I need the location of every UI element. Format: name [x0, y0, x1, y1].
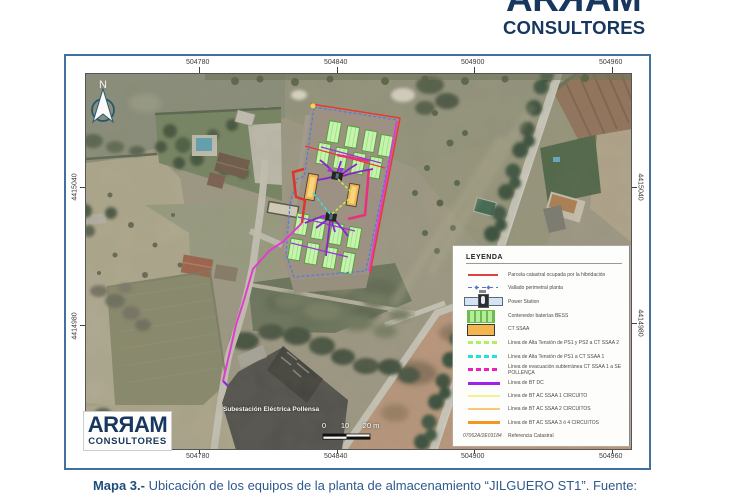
svg-text:20 m: 20 m [363, 421, 380, 430]
svg-text:Subestación Eléctrica Pollensa: Subestación Eléctrica Pollensa [223, 406, 319, 413]
svg-text:10: 10 [341, 421, 349, 430]
svg-text:0: 0 [322, 421, 326, 430]
svg-text:N: N [99, 79, 107, 91]
